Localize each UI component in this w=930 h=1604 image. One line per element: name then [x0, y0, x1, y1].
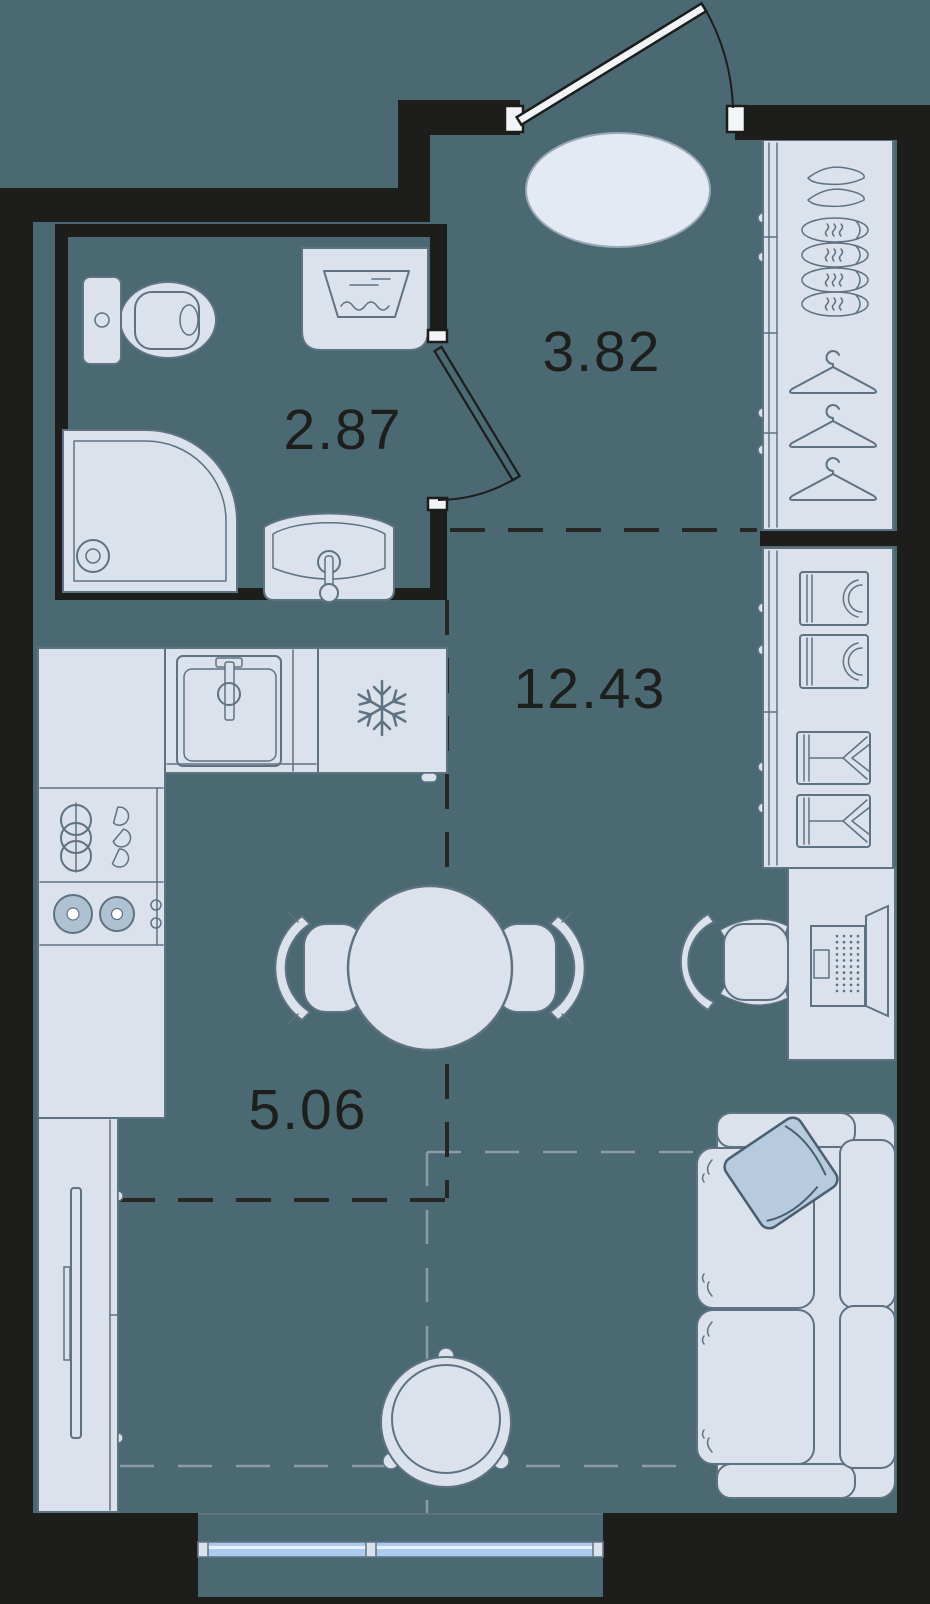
- closet-handle: [758, 803, 763, 813]
- floor-plan-canvas: 2.87 3.82 12.43 5.06: [0, 0, 930, 1604]
- bathroom-wall-right-upper: [430, 224, 447, 340]
- window-frame-end: [198, 1542, 208, 1557]
- sofa-armrest-bottom: [717, 1464, 855, 1498]
- closet-handle: [758, 762, 763, 772]
- oval-rug: [526, 133, 710, 247]
- kitchen-counter-column: [38, 648, 165, 1118]
- wardrobe-handle: [758, 408, 763, 418]
- tv-stand: [64, 1267, 70, 1360]
- wall-top-left: [0, 188, 430, 222]
- bathroom-wall-right-lower: [430, 500, 447, 600]
- sofa: [697, 1113, 895, 1498]
- wardrobe-handle: [758, 445, 763, 455]
- wall-bottom-right: [603, 1513, 930, 1604]
- window-frame-end: [593, 1542, 603, 1557]
- wall-left: [0, 188, 33, 1604]
- wall-bottom-left: [0, 1513, 198, 1604]
- wall-stub-wardrobe: [760, 531, 930, 546]
- window-stripe: [204, 1546, 597, 1549]
- window-outer-line: [198, 1597, 603, 1604]
- living-room-area-label: 12.43: [514, 657, 667, 721]
- wardrobe-handle: [758, 252, 763, 262]
- window-mullion: [366, 1542, 376, 1557]
- faucet-spout: [225, 662, 234, 720]
- wall-entry-left: [398, 100, 520, 135]
- console-handle: [118, 1433, 123, 1443]
- closet-handle: [758, 645, 763, 655]
- sofa-seat: [697, 1310, 814, 1464]
- wash-basin: [264, 514, 394, 603]
- tv: [71, 1188, 81, 1438]
- hallway-area-label: 3.82: [543, 320, 662, 384]
- laptop-screen: [866, 906, 888, 1016]
- hall-wardrobe: [758, 140, 893, 530]
- wardrobe-handle: [758, 213, 763, 223]
- toilet-tank: [83, 277, 121, 364]
- floor-plan: 2.87 3.82 12.43 5.06: [0, 0, 930, 1604]
- door-jamb: [428, 330, 447, 342]
- sofa-backrest: [840, 1306, 895, 1468]
- wall-right: [897, 105, 930, 1604]
- fridge: [318, 648, 447, 782]
- fridge-handle: [421, 773, 437, 782]
- door-jamb: [727, 106, 745, 132]
- bathroom-area-label: 2.87: [284, 398, 403, 462]
- tv-console: [38, 1118, 123, 1512]
- closet-handle: [758, 603, 763, 613]
- console-handle: [118, 1191, 123, 1201]
- toilet: [83, 277, 216, 364]
- bathroom-wall-top: [55, 224, 447, 237]
- kitchen-area-label: 5.06: [249, 1078, 368, 1142]
- sofa-backrest: [840, 1140, 895, 1308]
- washing-machine: [302, 248, 428, 350]
- dining-table: [348, 886, 512, 1050]
- linen-closet: [758, 548, 893, 868]
